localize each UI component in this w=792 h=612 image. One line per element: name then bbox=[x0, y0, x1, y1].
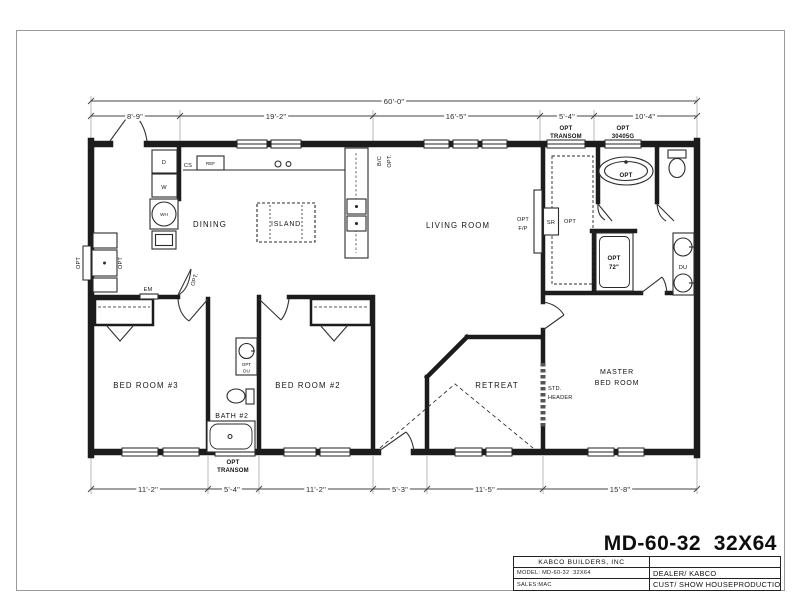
dryer-label: D bbox=[162, 160, 166, 166]
range bbox=[275, 161, 291, 167]
sr-opt-label: OPT bbox=[564, 219, 576, 225]
opt-left-outer-label: OPT bbox=[76, 257, 82, 269]
master-label-line1: MASTER bbox=[600, 369, 634, 376]
dim-bottom-5: 15'-8" bbox=[610, 485, 631, 494]
std-header-line1: STD. bbox=[548, 386, 562, 392]
dim-top-4: 10'-4" bbox=[635, 112, 656, 121]
production-status: PRODUCTION bbox=[733, 580, 780, 589]
entry-fixture bbox=[92, 233, 117, 292]
master-bath-door bbox=[641, 277, 667, 293]
cs-label: CS bbox=[184, 163, 192, 169]
customer-name: CUST/ SHOW HOUSE bbox=[653, 580, 733, 589]
master-bed-door bbox=[543, 302, 564, 330]
closet-bed3 bbox=[95, 299, 153, 341]
floor-plan: DINING LIVING ROOM BED ROOM #3 BED ROOM … bbox=[0, 0, 792, 612]
bed3-door bbox=[178, 299, 208, 321]
bath2-optdu-line2: DU bbox=[243, 369, 250, 374]
title-block-sales: SALES:MAC bbox=[514, 579, 650, 590]
std-header-line2: HEADER bbox=[548, 395, 573, 401]
dim-bottom-4: 11'-5" bbox=[475, 485, 495, 494]
exterior-walls bbox=[91, 141, 697, 455]
sr-bath-door bbox=[598, 204, 612, 221]
master-shower bbox=[596, 233, 633, 291]
title-block-company: KABCO BUILDERS, INC bbox=[514, 557, 650, 568]
em-label: EM bbox=[144, 287, 153, 293]
opt-glass-line2: 30405G bbox=[612, 134, 635, 140]
dim-bottom-0: 11'-2" bbox=[138, 485, 158, 494]
drawing-sheet: DINING LIVING ROOM BED ROOM #3 BED ROOM … bbox=[0, 0, 792, 612]
shower-label-line1: OPT bbox=[608, 256, 621, 262]
bedroom2-label: BED ROOM #2 bbox=[275, 381, 340, 390]
bath2-toilet bbox=[227, 389, 254, 404]
bottom-transom-line2: TRANSOM bbox=[217, 468, 249, 474]
closet-bed2 bbox=[311, 299, 371, 341]
top-transom-line1: OPT bbox=[560, 126, 573, 132]
tub-opt-label: OPT bbox=[620, 173, 633, 179]
opt-bc-label: OPT. bbox=[387, 154, 393, 167]
title-block-dealer: DEALER/ KABCO bbox=[650, 568, 780, 579]
retreat-ceiling-lines bbox=[380, 384, 533, 448]
master-label-line2: BED ROOM bbox=[595, 380, 640, 387]
dim-bottom-3: 5'-3" bbox=[392, 485, 408, 494]
island-label: ISLAND bbox=[271, 221, 301, 228]
bedroom3-label: BED ROOM #3 bbox=[113, 381, 178, 390]
title-block-model: MODEL: MD-60-32 32X64 bbox=[514, 568, 650, 579]
washer-label: W bbox=[161, 185, 167, 191]
master-toilet bbox=[668, 150, 686, 178]
dining-label: DINING bbox=[193, 220, 227, 229]
opt-hall-door-label: OPT. bbox=[190, 272, 200, 287]
opt-glass-line1: OPT bbox=[617, 126, 630, 132]
dim-top-0: 8'-9" bbox=[127, 112, 143, 121]
bottom-transom-line1: OPT bbox=[227, 460, 240, 466]
title-block-empty bbox=[650, 557, 780, 568]
bath2-label: BATH #2 bbox=[215, 413, 248, 420]
water-heater-label: WH bbox=[160, 212, 168, 217]
fixtures bbox=[92, 148, 694, 452]
top-transom-line2: TRANSOM bbox=[550, 134, 582, 140]
opt-left-inner-label: OPT bbox=[118, 257, 124, 269]
fireplace bbox=[534, 190, 542, 253]
living-room-label: LIVING ROOM bbox=[426, 221, 490, 230]
dim-top-3: 5'-4" bbox=[559, 112, 575, 121]
bed2-door bbox=[259, 299, 289, 320]
bath2-tub bbox=[207, 421, 255, 452]
em-meter bbox=[140, 294, 158, 299]
bc-label: B/C bbox=[377, 156, 383, 166]
dim-bottom-2: 11'-2" bbox=[306, 485, 326, 494]
sr-label: SR bbox=[547, 220, 555, 226]
du-label: DU bbox=[679, 265, 687, 271]
dim-top-1: 19'-2" bbox=[266, 112, 287, 121]
retreat-label: RETREAT bbox=[475, 381, 519, 390]
dim-overall: 60'-0" bbox=[384, 97, 405, 106]
ref-label: REF bbox=[206, 161, 215, 166]
rear-door bbox=[379, 432, 414, 451]
master-vanity bbox=[673, 233, 694, 295]
bath2-optdu-line1: OPT bbox=[242, 362, 252, 367]
garden-tub bbox=[599, 157, 653, 185]
drawing-title: MD-60-32 32X64 bbox=[604, 532, 777, 556]
title-block: KABCO BUILDERS, INC MODEL: MD-60-32 32X6… bbox=[513, 556, 781, 591]
shower-label-line2: 72" bbox=[609, 265, 619, 271]
interior-walls bbox=[91, 144, 697, 452]
hall-opt-door bbox=[178, 269, 191, 295]
fireplace-label-line2: F/P bbox=[518, 226, 527, 232]
dim-bottom-1: 5'-4" bbox=[224, 485, 240, 494]
toilet-room-door bbox=[657, 204, 674, 221]
dim-top-2: 16'-5" bbox=[446, 112, 467, 121]
fireplace-label-line1: OPT bbox=[517, 217, 529, 223]
water-heater bbox=[150, 199, 178, 249]
title-block-customer: CUST/ SHOW HOUSE PRODUCTION bbox=[650, 579, 780, 590]
